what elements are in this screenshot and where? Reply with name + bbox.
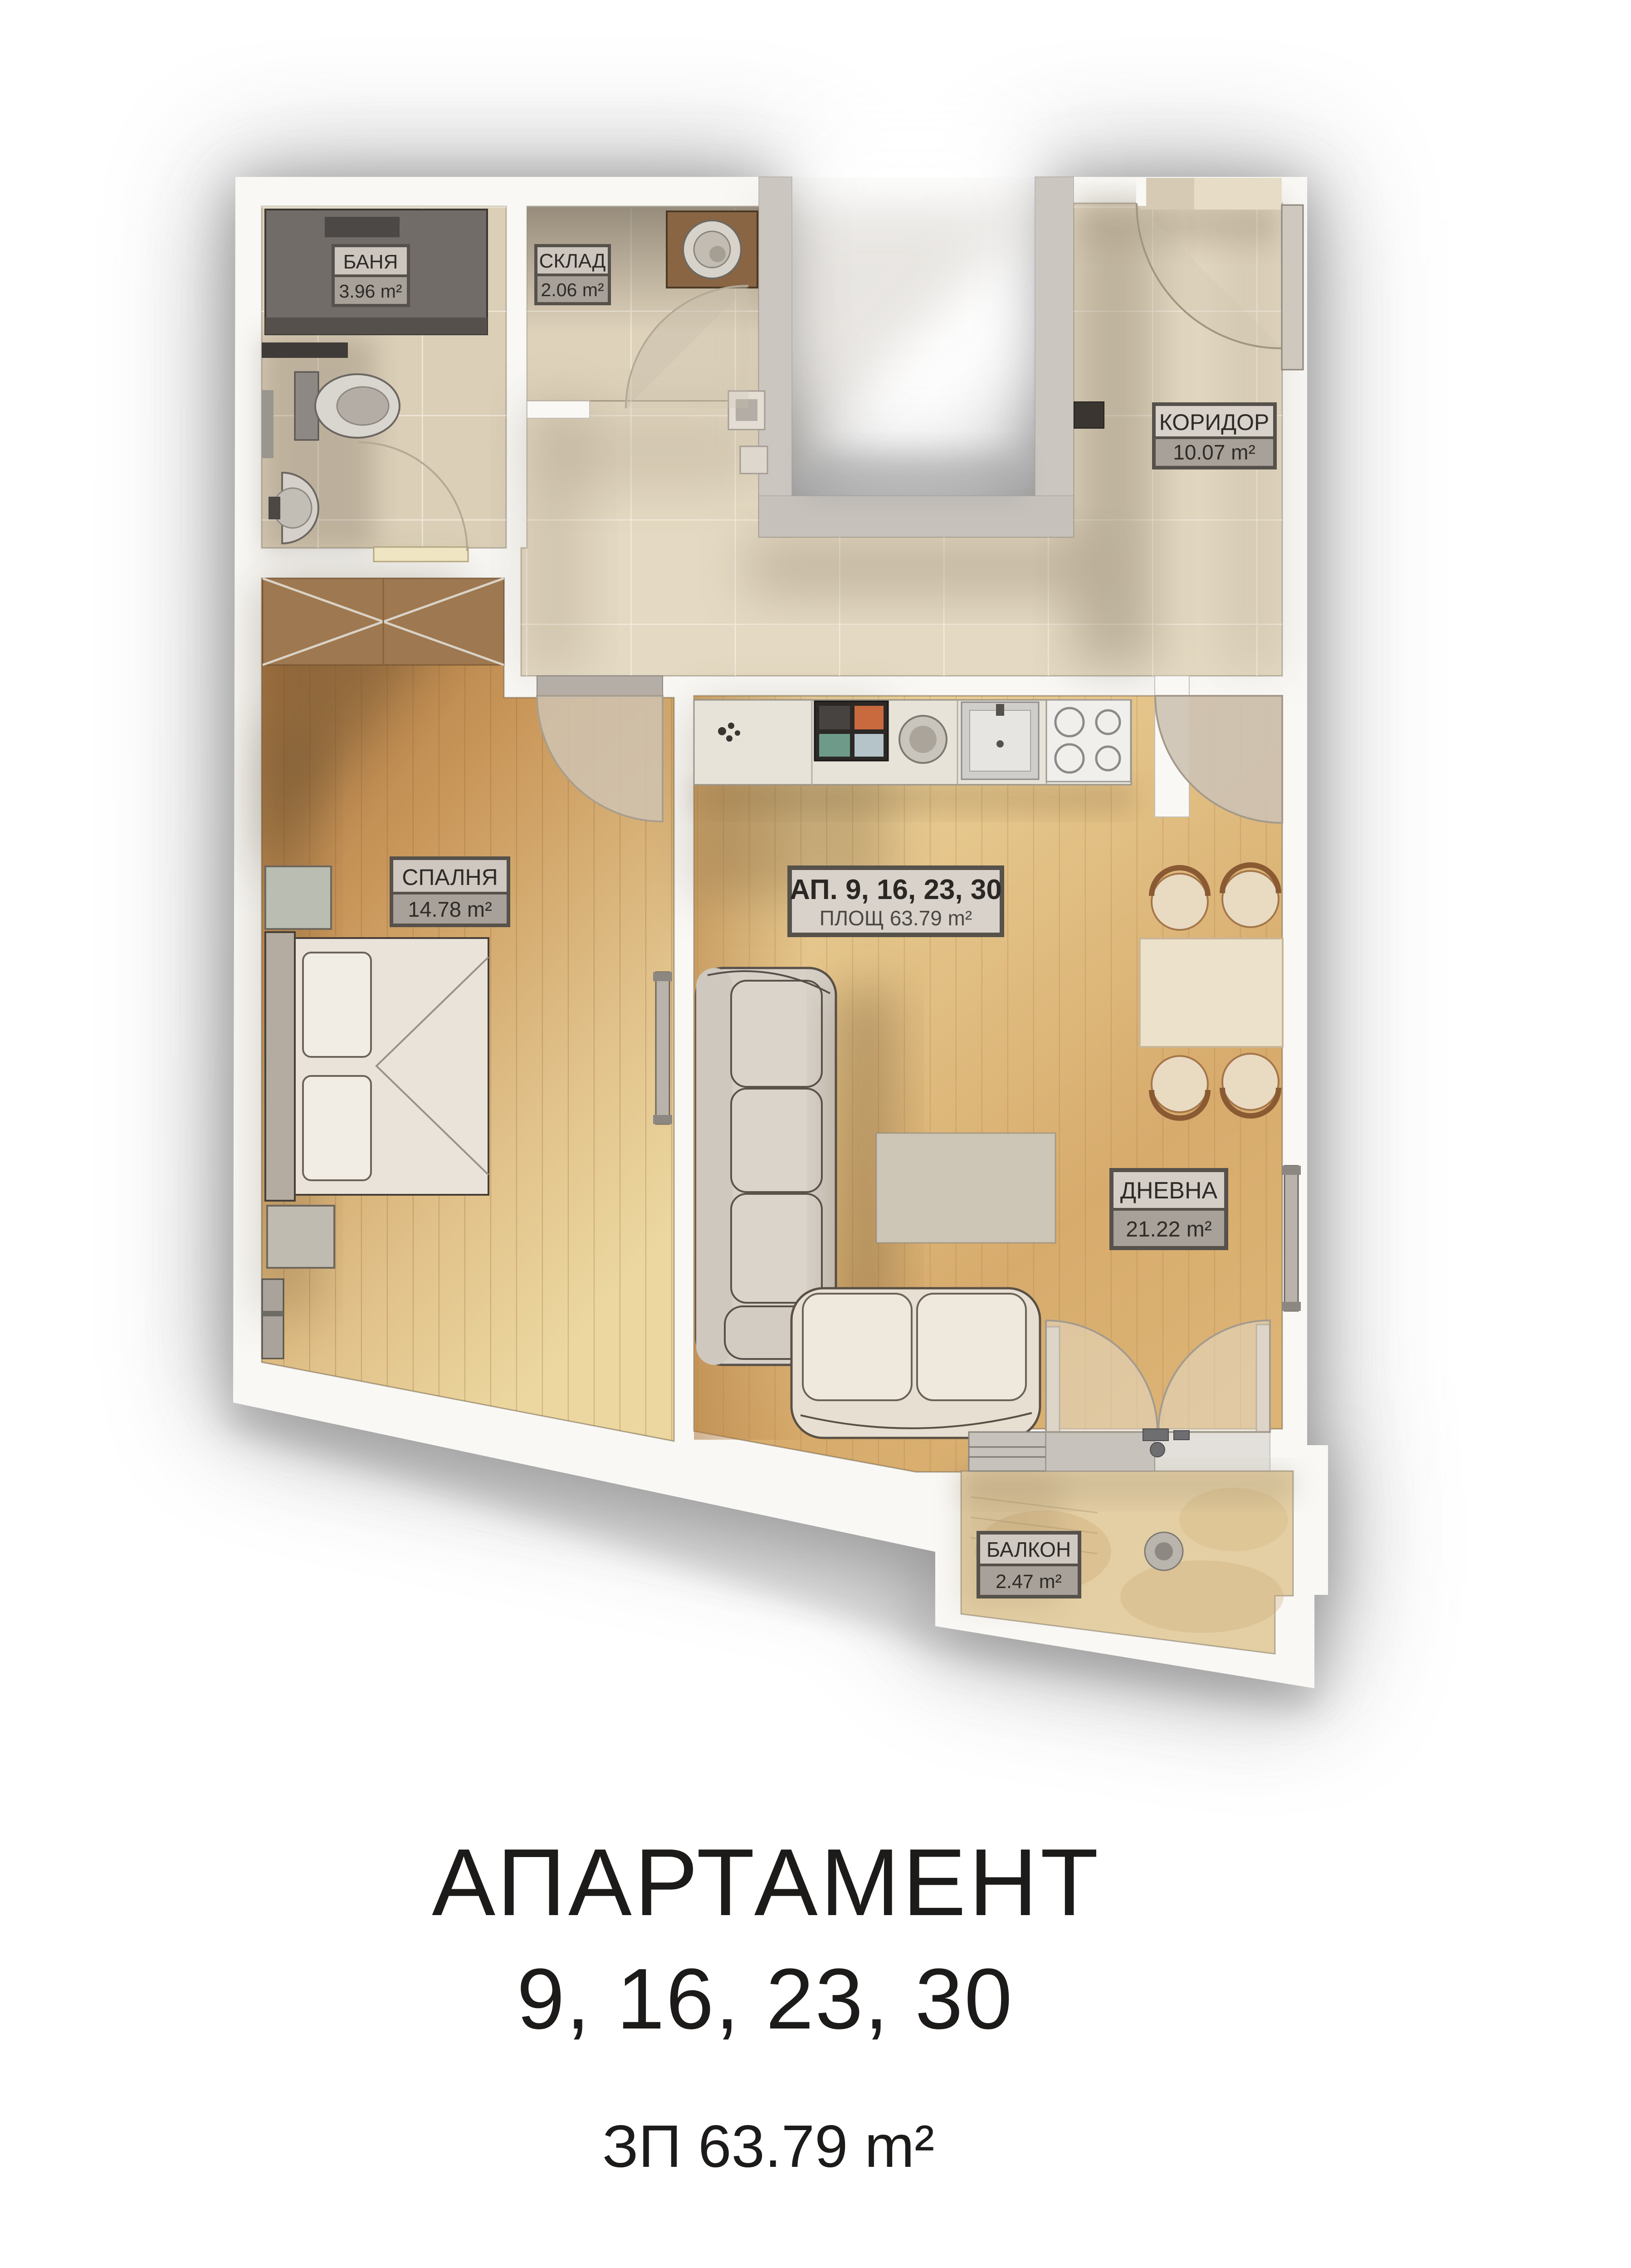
svg-text:БАНЯ: БАНЯ xyxy=(343,251,398,273)
svg-text:14.78 m²: 14.78 m² xyxy=(408,897,492,921)
svg-text:9, 16, 23, 30: 9, 16, 23, 30 xyxy=(517,1951,1013,2047)
svg-text:2.06 m²: 2.06 m² xyxy=(541,279,604,300)
svg-text:21.22 m²: 21.22 m² xyxy=(1126,1217,1211,1242)
svg-text:АПАРТАМЕНТ: АПАРТАМЕНТ xyxy=(432,1829,1101,1936)
svg-text:3.96 m²: 3.96 m² xyxy=(339,281,402,302)
svg-text:ПЛОЩ 63.79 m²: ПЛОЩ 63.79 m² xyxy=(820,906,972,930)
svg-text:КОРИДОР: КОРИДОР xyxy=(1159,410,1270,435)
svg-text:ДНЕВНА: ДНЕВНА xyxy=(1120,1178,1218,1204)
svg-text:2.47 m²: 2.47 m² xyxy=(996,1571,1062,1593)
svg-text:СПАЛНЯ: СПАЛНЯ xyxy=(402,865,498,890)
svg-text:ЗП 63.79 m²: ЗП 63.79 m² xyxy=(602,2113,934,2180)
svg-text:10.07 m²: 10.07 m² xyxy=(1173,440,1255,464)
svg-text:СКЛАД: СКЛАД xyxy=(539,250,606,272)
svg-text:АП. 9, 16, 23, 30: АП. 9, 16, 23, 30 xyxy=(790,874,1002,905)
svg-text:БАЛКОН: БАЛКОН xyxy=(986,1538,1071,1561)
